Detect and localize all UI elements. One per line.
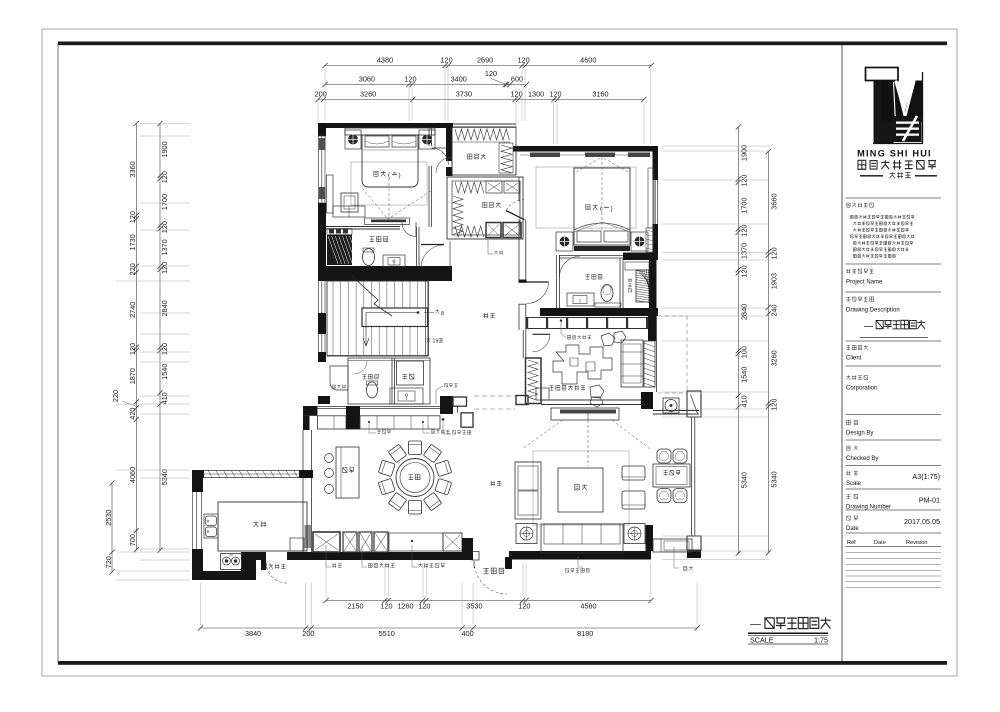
svg-text:SCALE: SCALE: [750, 635, 774, 644]
svg-text:19: 19: [433, 339, 439, 345]
svg-text:MING SHI HUI: MING SHI HUI: [857, 149, 932, 159]
svg-text:3530: 3530: [466, 602, 482, 611]
svg-text:Checked By: Checked By: [846, 456, 878, 462]
svg-text:Drawing Number: Drawing Number: [846, 505, 891, 511]
svg-text:3400: 3400: [451, 75, 467, 84]
svg-text:5340: 5340: [160, 469, 169, 485]
svg-text:2740: 2740: [128, 302, 137, 318]
svg-text:5510: 5510: [379, 629, 395, 638]
svg-text:Design By: Design By: [846, 431, 873, 437]
svg-text:Ref: Ref: [847, 540, 856, 546]
svg-text:1260: 1260: [397, 602, 413, 611]
svg-text:1900: 1900: [160, 141, 169, 157]
svg-text:4600: 4600: [580, 56, 596, 65]
svg-text:): ): [611, 205, 613, 212]
svg-text:1730: 1730: [128, 234, 137, 250]
svg-text:120: 120: [160, 221, 169, 233]
svg-text:Date: Date: [874, 540, 886, 546]
svg-text:120: 120: [160, 171, 169, 183]
svg-text:Date: Date: [846, 526, 859, 532]
svg-text:A3(1:75): A3(1:75): [912, 472, 940, 481]
svg-text:120: 120: [380, 602, 392, 611]
svg-text:5340: 5340: [769, 471, 778, 487]
svg-text:2690: 2690: [477, 56, 493, 65]
svg-text:100: 100: [739, 346, 748, 358]
svg-text:Client: Client: [846, 356, 862, 362]
svg-text:): ): [399, 172, 401, 179]
svg-text:3260: 3260: [360, 90, 376, 99]
svg-text:2150: 2150: [347, 602, 363, 611]
svg-text:120: 120: [485, 69, 497, 78]
svg-text:120: 120: [769, 247, 778, 259]
svg-text:420: 420: [128, 408, 137, 420]
svg-text:120: 120: [418, 602, 430, 611]
svg-text:410: 410: [739, 395, 748, 407]
svg-text:1300: 1300: [528, 90, 544, 99]
svg-text:120: 120: [511, 90, 523, 99]
svg-text:120: 120: [739, 175, 748, 187]
svg-text:120: 120: [549, 90, 561, 99]
svg-text:2530: 2530: [104, 510, 113, 526]
svg-text:120: 120: [128, 211, 137, 223]
svg-text:1700: 1700: [160, 194, 169, 210]
svg-text:720: 720: [104, 556, 113, 568]
svg-text:3160: 3160: [592, 90, 608, 99]
svg-text:Scale: Scale: [846, 481, 862, 487]
svg-text:3360: 3360: [128, 161, 137, 177]
svg-text:2840: 2840: [739, 304, 748, 320]
svg-text:2840: 2840: [160, 300, 169, 316]
svg-text:1903: 1903: [769, 273, 778, 289]
svg-text:8180: 8180: [577, 629, 593, 638]
svg-text:400: 400: [462, 629, 474, 638]
svg-text:Drawing Description: Drawing Description: [846, 308, 900, 314]
svg-text:3060: 3060: [359, 75, 375, 84]
svg-text:1870: 1870: [128, 368, 137, 384]
svg-text:120: 120: [769, 399, 778, 411]
svg-text:1900: 1900: [739, 145, 748, 161]
svg-text:220: 220: [111, 390, 120, 402]
svg-text:1370: 1370: [739, 243, 748, 259]
svg-text:PM-01: PM-01: [919, 496, 940, 505]
svg-text:1540: 1540: [160, 364, 169, 380]
svg-text:120: 120: [404, 75, 416, 84]
svg-text:700: 700: [128, 534, 137, 546]
svg-text:5340: 5340: [739, 472, 748, 488]
svg-text:1700: 1700: [739, 197, 748, 213]
svg-text:120: 120: [128, 343, 137, 355]
svg-text:1540: 1540: [739, 367, 748, 383]
svg-text:3660: 3660: [769, 193, 778, 209]
svg-text:120: 120: [441, 56, 453, 65]
svg-text:120: 120: [160, 262, 169, 274]
svg-text:3730: 3730: [456, 90, 472, 99]
svg-text:240: 240: [769, 304, 778, 316]
svg-text:120: 120: [160, 343, 169, 355]
svg-text:120: 120: [739, 265, 748, 277]
svg-text:4380: 4380: [377, 56, 393, 65]
svg-text:4060: 4060: [128, 467, 137, 483]
svg-text:1370: 1370: [160, 239, 169, 255]
svg-text:410: 410: [160, 392, 169, 404]
svg-text:8: 8: [441, 311, 444, 317]
svg-text:120: 120: [739, 225, 748, 237]
svg-text:120: 120: [518, 56, 530, 65]
svg-text:4560: 4560: [580, 602, 596, 611]
svg-text:2017.05.05: 2017.05.05: [904, 517, 940, 526]
svg-text:220: 220: [128, 263, 137, 275]
svg-text:1:75: 1:75: [814, 635, 828, 644]
svg-text:120: 120: [518, 602, 530, 611]
svg-text:3260: 3260: [769, 350, 778, 366]
svg-text:Project Name: Project Name: [846, 280, 883, 286]
svg-text:Revision: Revision: [906, 540, 927, 546]
svg-text:200: 200: [302, 629, 314, 638]
svg-text:3840: 3840: [245, 629, 261, 638]
svg-text:Corporation: Corporation: [846, 386, 877, 392]
